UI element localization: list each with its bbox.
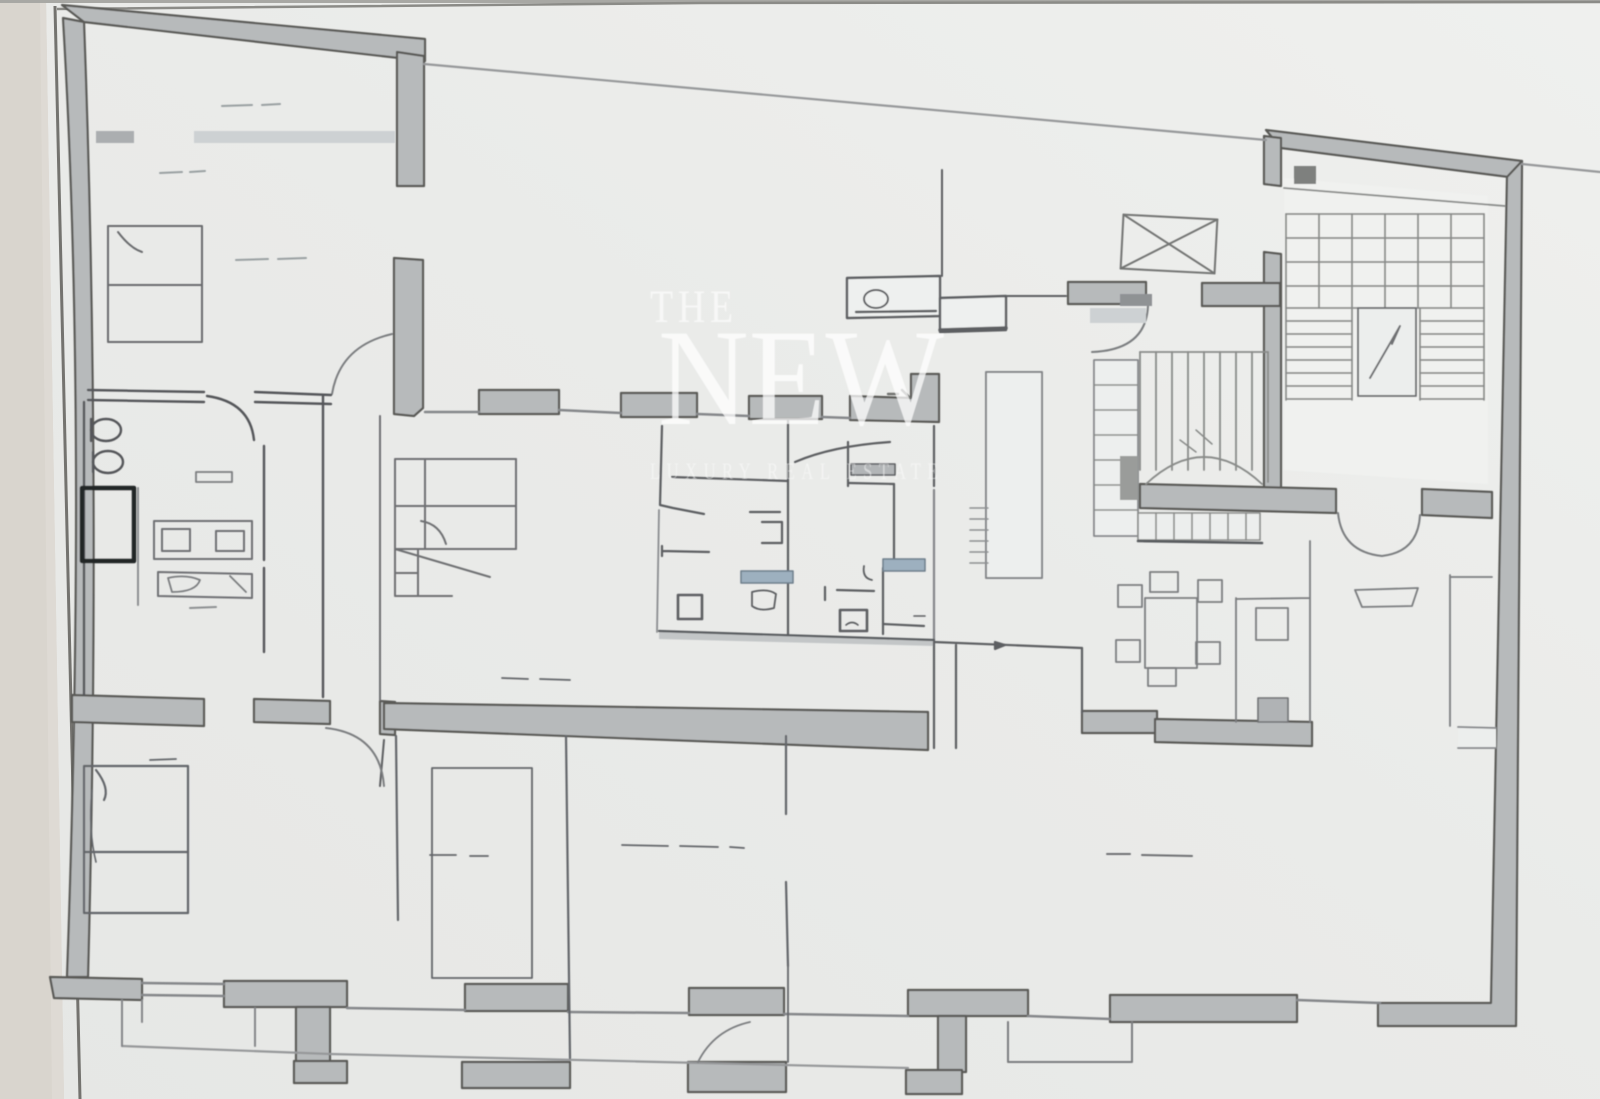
svg-text:NEW: NEW bbox=[658, 301, 944, 454]
svg-text:LUXURY REAL ESTATE: LUXURY REAL ESTATE bbox=[650, 459, 944, 484]
